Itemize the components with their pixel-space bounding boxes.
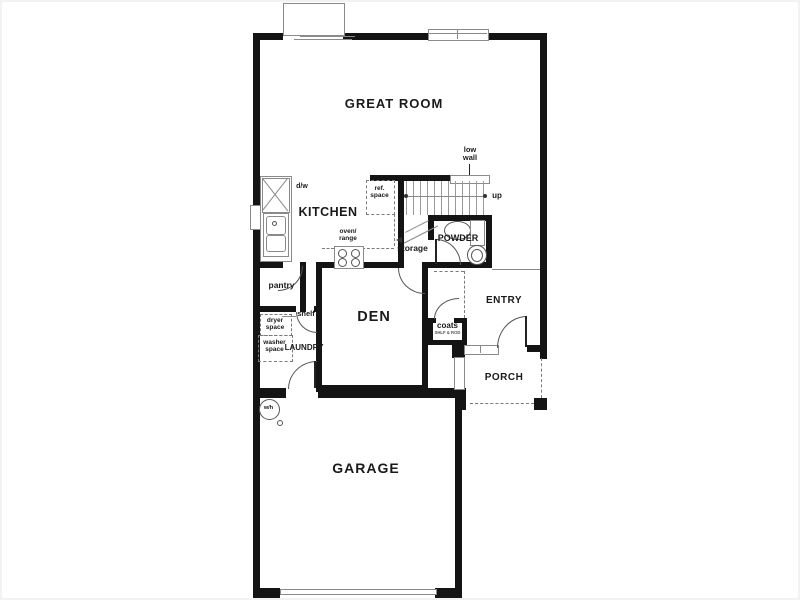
hearth-line <box>300 36 355 37</box>
counter-dashed-edge <box>322 248 334 249</box>
door-arc-garage <box>288 361 317 389</box>
label-dryer-space: dryerspace <box>261 317 289 332</box>
burner <box>338 249 347 258</box>
wall <box>253 33 260 205</box>
label-oven-range: oven/range <box>333 228 363 243</box>
sink-bowl <box>471 249 483 262</box>
room-label-powder: POWDER <box>431 233 485 243</box>
stair-tread <box>476 181 477 215</box>
wall <box>253 588 280 598</box>
stair-tread <box>469 181 470 215</box>
wall <box>435 588 462 598</box>
window <box>454 357 465 390</box>
door-arc-storage <box>398 268 425 294</box>
stair-tread <box>462 181 463 215</box>
label-water-heater: w/h <box>259 399 278 418</box>
wall <box>487 33 547 40</box>
label-washer-space: washerspace <box>259 339 290 354</box>
wall <box>540 33 547 352</box>
wall <box>486 215 492 268</box>
low-wall-leader-line <box>469 164 470 175</box>
room-label-entry: ENTRY <box>479 295 529 306</box>
label-dishwasher: d/w <box>292 183 312 191</box>
counter-dashed-edge <box>362 248 394 249</box>
window <box>428 29 489 41</box>
label-coats-note: SHLF & ROD <box>431 331 464 336</box>
wall <box>398 175 404 268</box>
label-shelf: shelf <box>293 310 319 318</box>
room-label-porch: PORCH <box>479 372 529 383</box>
stair-tread <box>448 181 449 215</box>
hearth-line <box>294 39 352 40</box>
stair-direction-line <box>406 196 486 197</box>
floor-plan: GREAT ROOM KITCHEN DEN GARAGE ENTRY PORC… <box>0 0 800 600</box>
door-leaf <box>314 361 316 388</box>
window <box>464 345 499 355</box>
door-arc-coats <box>434 298 459 319</box>
stair-tread <box>434 181 435 215</box>
stair-tread <box>455 181 456 215</box>
counter-dashed-edge <box>394 214 395 246</box>
porch-dashed-edge <box>470 403 534 404</box>
entry-dashed-line <box>464 271 465 318</box>
stair-direction-dot <box>483 194 487 198</box>
label-low-wall: lowwall <box>457 146 483 163</box>
wall <box>455 398 462 598</box>
door-arc-front <box>497 316 527 348</box>
ceiling-break-line <box>492 269 540 270</box>
window-mullion <box>428 33 487 34</box>
window-mullion <box>480 345 481 353</box>
sink-basin <box>266 235 286 252</box>
hall-dashed-line <box>434 271 464 272</box>
label-up: up <box>489 192 505 201</box>
label-pantry: pantry <box>263 281 300 291</box>
stair-tread <box>420 181 421 215</box>
garage-door <box>280 589 437 595</box>
burner <box>351 249 360 258</box>
stair-tread <box>427 181 428 215</box>
room-label-garage: GARAGE <box>330 461 402 477</box>
wall <box>253 388 286 398</box>
wall <box>455 388 466 410</box>
stair-tread <box>483 181 484 215</box>
faucet-dot <box>272 221 277 226</box>
burner <box>351 258 360 267</box>
door-leaf <box>525 316 527 347</box>
wall <box>318 388 465 398</box>
burner <box>338 258 347 267</box>
fireplace-bumpout <box>283 3 345 36</box>
stair-direction-dot <box>404 194 408 198</box>
wall <box>253 306 296 312</box>
room-label-great-room: GREAT ROOM <box>334 97 454 112</box>
wall <box>534 398 547 410</box>
label-ref-space: ref.space <box>367 185 392 200</box>
label-storage: storage <box>394 244 431 254</box>
room-label-den: DEN <box>348 309 400 325</box>
stair-tread <box>406 181 407 215</box>
room-label-kitchen: KITCHEN <box>297 205 359 219</box>
low-wall <box>450 175 490 184</box>
stair-tread <box>413 181 414 215</box>
window-mullion <box>457 29 458 39</box>
wall <box>343 33 428 40</box>
stair-tread <box>441 181 442 215</box>
porch-dashed-edge <box>541 358 542 398</box>
floor-drain <box>277 420 283 426</box>
